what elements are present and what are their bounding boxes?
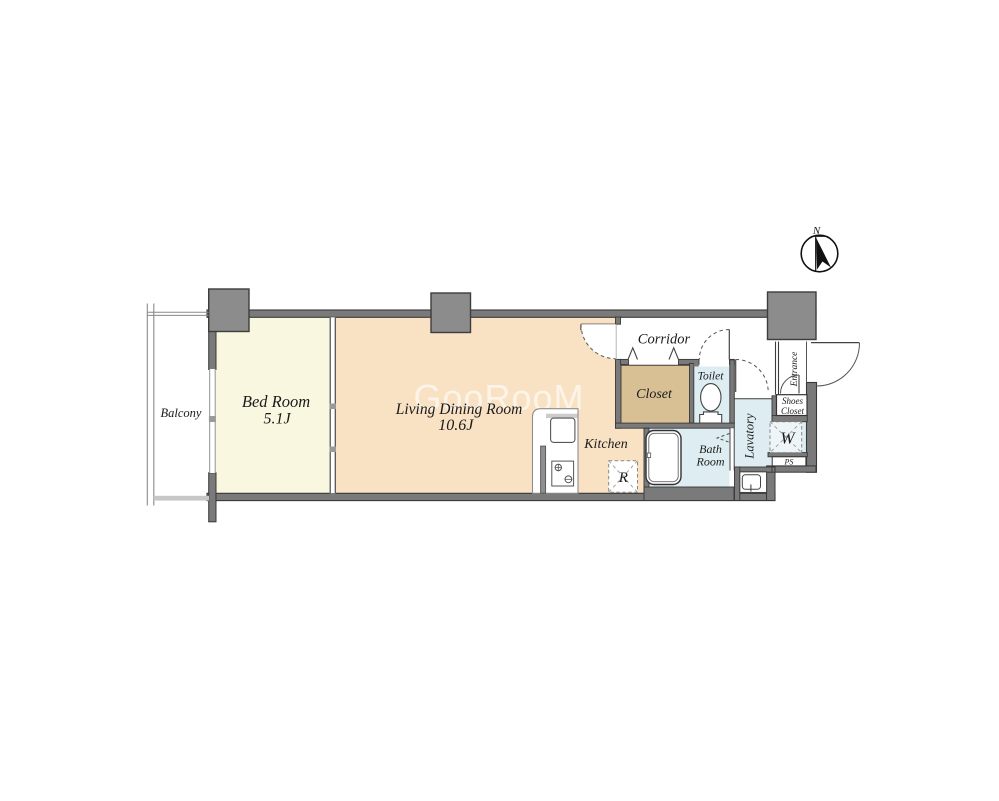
svg-text:Living Dining Room: Living Dining Room bbox=[395, 401, 523, 418]
svg-text:Closet: Closet bbox=[781, 406, 805, 416]
svg-text:Kitchen: Kitchen bbox=[583, 437, 628, 452]
svg-text:N: N bbox=[812, 225, 821, 237]
svg-text:Closet: Closet bbox=[636, 387, 673, 402]
svg-text:PS: PS bbox=[784, 457, 794, 466]
svg-text:Corridor: Corridor bbox=[638, 332, 691, 348]
svg-text:Entrance: Entrance bbox=[790, 352, 800, 388]
svg-text:5.1J: 5.1J bbox=[263, 411, 291, 428]
svg-text:10.6J: 10.6J bbox=[438, 417, 474, 434]
svg-text:R: R bbox=[618, 470, 628, 486]
svg-text:Bed Room: Bed Room bbox=[242, 392, 310, 411]
svg-text:Toilet: Toilet bbox=[698, 371, 725, 383]
svg-text:Shoes: Shoes bbox=[782, 396, 803, 406]
svg-text:Balcony: Balcony bbox=[161, 406, 202, 420]
svg-text:Room: Room bbox=[696, 454, 725, 468]
svg-text:W: W bbox=[780, 429, 796, 448]
svg-text:Lavatory: Lavatory bbox=[743, 413, 757, 460]
